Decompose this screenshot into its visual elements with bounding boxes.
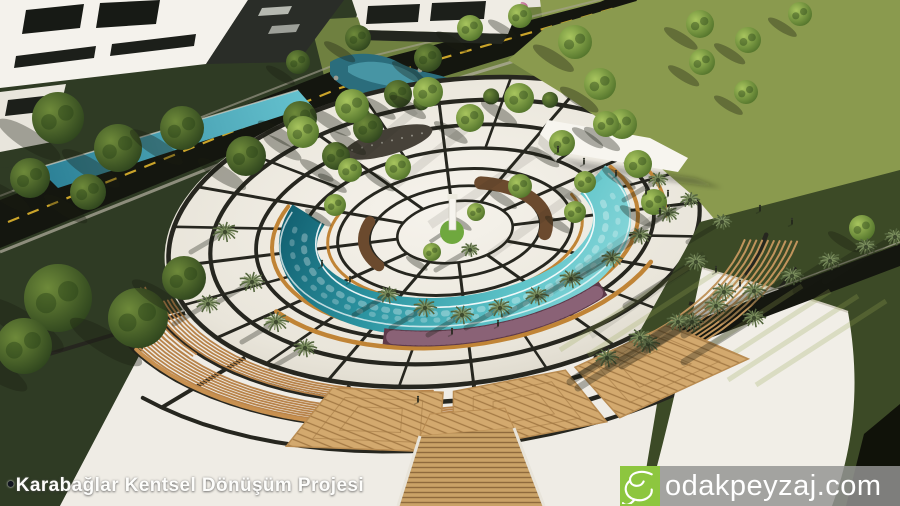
watermark-domain: odakpeyzaj.com: [660, 466, 900, 506]
project-caption-text: Karabağlar Kentsel Dönüşüm Projesi: [16, 475, 364, 496]
render-viewport: •Karabağlar Kentsel Dönüşüm Projesi odak…: [0, 0, 900, 506]
project-caption: •Karabağlar Kentsel Dönüşüm Projesi: [7, 473, 364, 497]
script-e-swirl-icon: [622, 468, 658, 504]
watermark: odakpeyzaj.com: [620, 466, 900, 506]
odakpeyzaj-logo: [620, 466, 660, 506]
landscape-3d-render: [0, 0, 900, 506]
bullet-dot-icon: •: [7, 473, 15, 496]
